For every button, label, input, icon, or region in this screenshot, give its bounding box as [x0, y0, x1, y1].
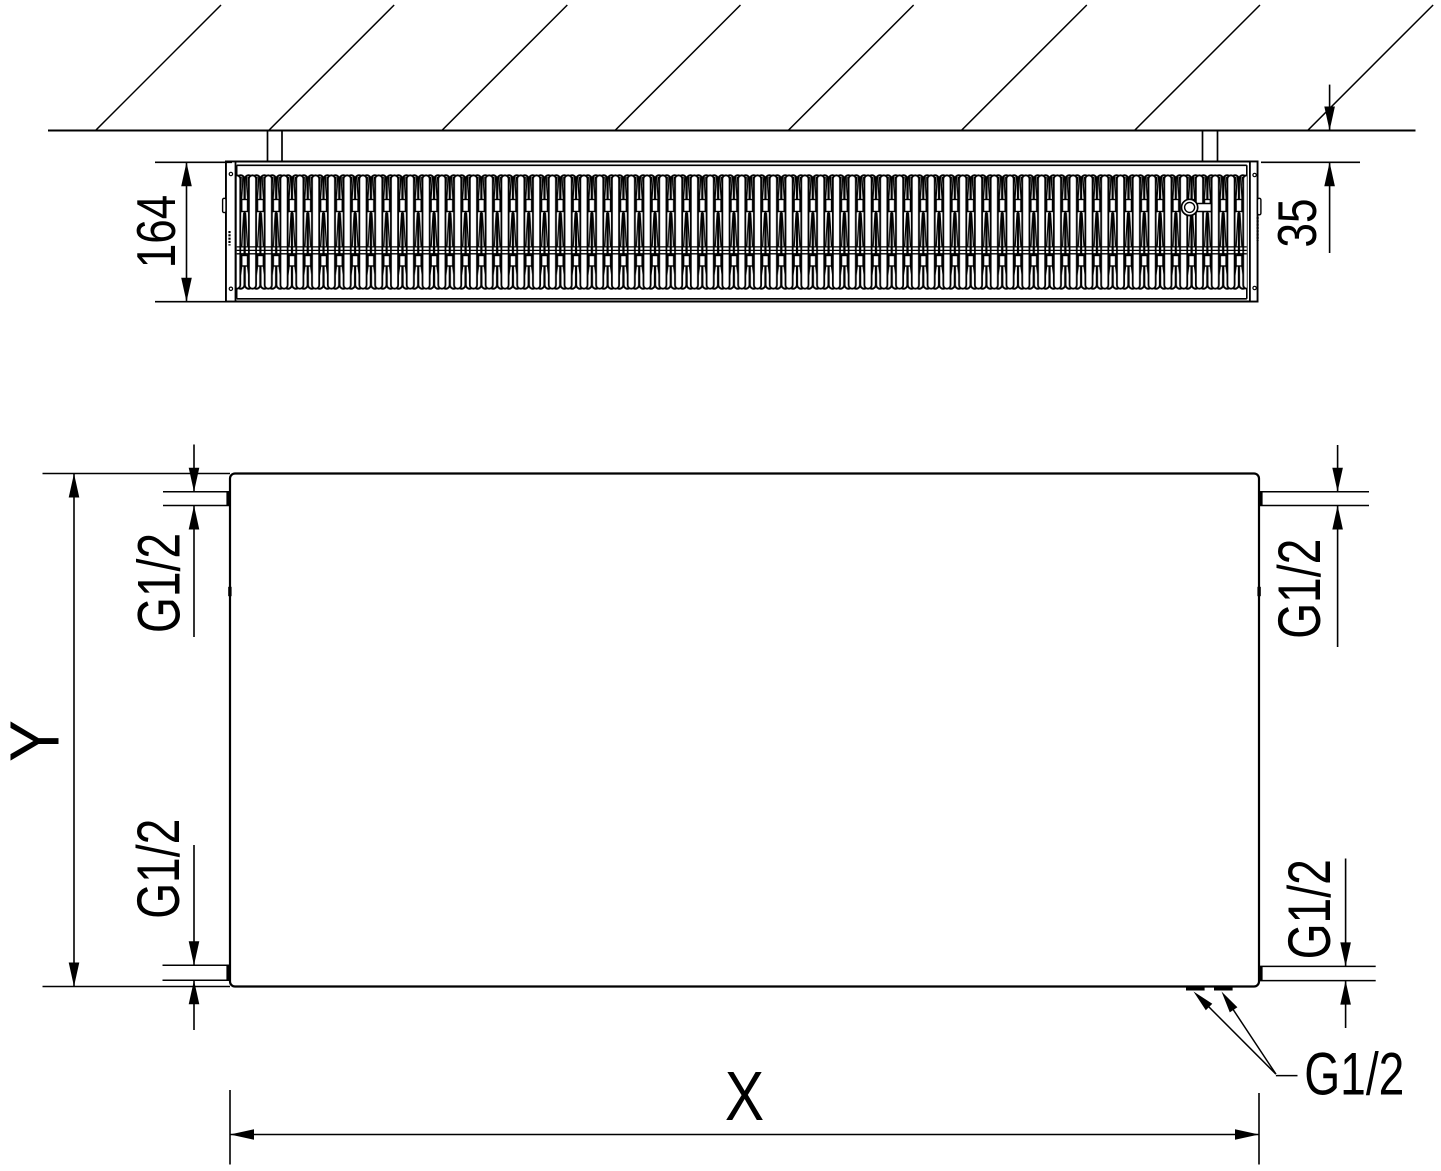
svg-text:G1/2: G1/2	[126, 819, 192, 919]
svg-text:G1/2: G1/2	[1304, 1042, 1404, 1108]
svg-text:G1/2: G1/2	[127, 533, 193, 633]
svg-text:Y: Y	[0, 720, 74, 762]
svg-text:35: 35	[1266, 199, 1328, 248]
svg-text:X: X	[725, 1056, 764, 1135]
svg-text:164: 164	[126, 195, 188, 268]
svg-text:G1/2: G1/2	[1267, 539, 1333, 639]
svg-text:G1/2: G1/2	[1277, 859, 1343, 959]
